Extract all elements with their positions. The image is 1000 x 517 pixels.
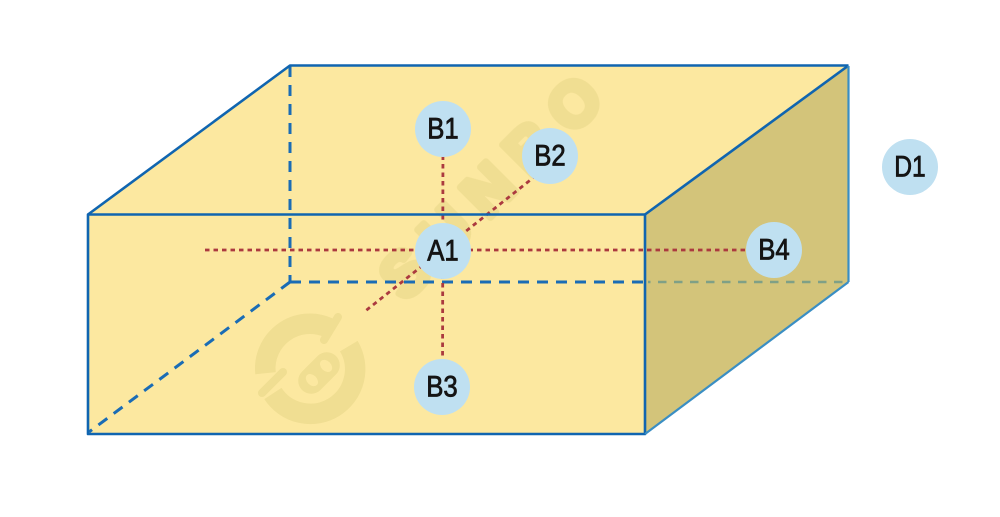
svg-text:B2: B2 — [534, 139, 566, 172]
svg-text:B1: B1 — [427, 112, 459, 145]
svg-text:B4: B4 — [758, 233, 790, 266]
svg-text:D1: D1 — [894, 150, 926, 183]
svg-text:B3: B3 — [426, 370, 458, 403]
svg-text:A1: A1 — [427, 234, 459, 267]
